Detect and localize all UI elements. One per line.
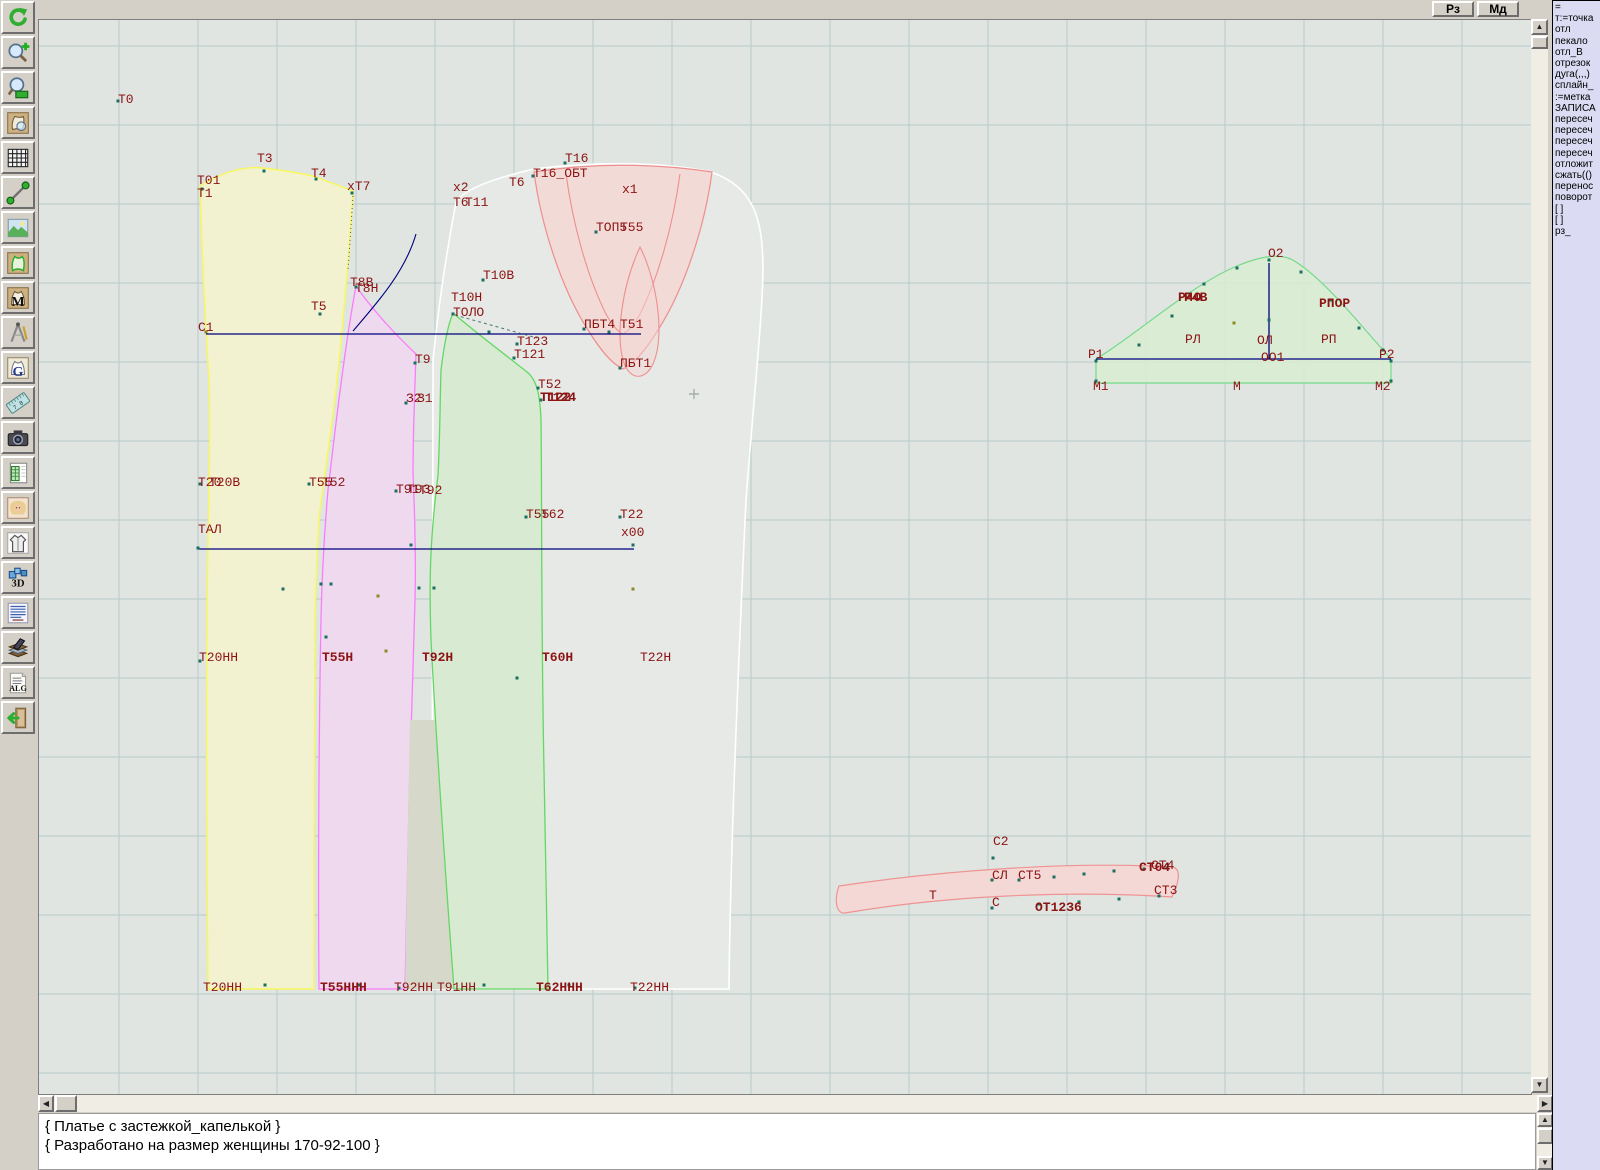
toolbar-view-3d-button[interactable]: 3D — [1, 561, 35, 594]
point-label: М1 — [1093, 379, 1109, 394]
pattern-canvas[interactable]: Т0Т3Т01Т1Т4хТ7х2Т6Т11Т6Т16Т16_ОБТх1ТОП5Т… — [38, 19, 1532, 1095]
point-label: СТ3 — [1154, 883, 1177, 898]
canvas-vscrollbar[interactable]: ▲ ▼ — [1531, 19, 1548, 1093]
point-label: Т22Н — [640, 650, 671, 665]
image-icon — [5, 215, 31, 241]
point-label: РЛ — [1185, 332, 1201, 347]
point-label: Т — [929, 888, 937, 903]
point-label: М2 — [1375, 379, 1391, 394]
point-label: Т55ННН — [320, 980, 367, 995]
status-vscrollbar[interactable]: ▲ ▼ — [1537, 1113, 1553, 1170]
point-label: СЛ — [992, 868, 1008, 883]
point-label: Р1 — [1088, 347, 1104, 362]
command-item[interactable]: т:=точка — [1555, 13, 1600, 24]
scroll-up-icon[interactable]: ▲ — [1531, 19, 1548, 35]
svg-text:ALG: ALG — [9, 684, 27, 693]
point-label: Т0 — [118, 92, 134, 107]
app-window: MG783DALG Рз Мд — [0, 0, 1600, 1170]
point-label: Т5 — [311, 299, 327, 314]
point-label: РП — [1321, 332, 1337, 347]
toolbar-exit-button[interactable] — [1, 701, 35, 734]
toolbar-zoom-in-button[interactable] — [1, 36, 35, 69]
scroll-left-icon[interactable]: ◀ — [38, 1095, 54, 1112]
point-label: Т16_ОБТ — [533, 166, 588, 181]
scroll-right-icon[interactable]: ▶ — [1537, 1095, 1553, 1112]
status-line-1: { Платье с застежкой_капелькой } — [45, 1117, 1529, 1136]
pattern-m-icon: M — [5, 285, 31, 311]
command-item[interactable]: [ ] — [1555, 204, 1600, 215]
toolbar-ruler-button[interactable]: 78 — [1, 386, 35, 419]
status-line-2: { Разработано на размер женщины 170-92-1… — [45, 1136, 1529, 1155]
point-label: Т1 — [197, 186, 213, 201]
command-item[interactable]: сплайн_ — [1555, 80, 1600, 91]
scroll-down-icon[interactable]: ▼ — [1531, 1077, 1548, 1093]
command-item[interactable]: отл_В — [1555, 47, 1600, 58]
point-label: Т62 — [541, 507, 564, 522]
hscroll-thumb[interactable] — [55, 1095, 77, 1112]
point-label: ОЛ — [1257, 333, 1273, 348]
point-label: Т9 — [415, 352, 431, 367]
point-label: Т20В — [209, 475, 240, 490]
toolbar-image-button[interactable] — [1, 211, 35, 244]
status-scroll-up-icon[interactable]: ▲ — [1537, 1113, 1553, 1127]
point-label: Т124 — [545, 390, 576, 405]
command-item[interactable]: отрезок — [1555, 58, 1600, 69]
command-item[interactable]: пересеч — [1555, 125, 1600, 136]
command-item[interactable]: поворот — [1555, 192, 1600, 203]
point-label: С — [992, 895, 1000, 910]
point-label: Р4В — [1184, 290, 1208, 305]
point-label: Т22НН — [630, 980, 669, 995]
point-label: М — [1233, 379, 1241, 394]
measure-icon — [5, 180, 31, 206]
point-label: Т10В — [483, 268, 514, 283]
point-label: Т8Н — [355, 281, 378, 296]
toolbar-undo-button[interactable] — [1, 1, 35, 34]
command-item[interactable]: дуга(,,,) — [1555, 69, 1600, 80]
point-label: С1 — [198, 320, 214, 335]
toolbar-pattern-m-button[interactable]: M — [1, 281, 35, 314]
command-item[interactable]: :=метка — [1555, 92, 1600, 103]
command-item[interactable]: пересеч — [1555, 148, 1600, 159]
toolbar-pattern-button[interactable] — [1, 246, 35, 279]
svg-text:G: G — [13, 364, 24, 380]
toolbar-garment-button[interactable] — [1, 526, 35, 559]
point-label: З1 — [417, 391, 433, 406]
sleeve-piece[interactable] — [1096, 256, 1391, 383]
ruler-icon: 78 — [5, 390, 31, 416]
point-label: РПОР — [1319, 296, 1350, 311]
command-item[interactable]: пересеч — [1555, 114, 1600, 125]
point-label: СТ4 — [1151, 858, 1175, 873]
point-label: ТОЛО — [453, 305, 484, 320]
toolbar-compass-button[interactable] — [1, 316, 35, 349]
zoom-window-icon — [5, 75, 31, 101]
command-item[interactable]: пекало — [1555, 36, 1600, 47]
point-label: х00 — [621, 525, 644, 540]
point-label: Т91НН — [437, 980, 476, 995]
point-label: Т11 — [465, 195, 489, 210]
point-label: Т6 — [509, 175, 525, 190]
undo-icon — [5, 5, 31, 31]
point-label: Т4 — [311, 166, 327, 181]
point-label: Т55 — [620, 220, 643, 235]
pattern-icon — [5, 250, 31, 276]
toolbar-grid-button[interactable] — [1, 141, 35, 174]
toolbar-model-photo-button[interactable] — [1, 491, 35, 524]
command-item[interactable]: сжать(() — [1555, 170, 1600, 181]
left-toolbar: MG783DALG — [0, 0, 37, 1170]
toolbar-piece-preview-button[interactable] — [1, 106, 35, 139]
exit-icon — [5, 705, 31, 731]
point-label: ОТ12З6 — [1035, 900, 1082, 915]
point-label: Т92НН — [394, 980, 433, 995]
vscroll-thumb[interactable] — [1531, 36, 1548, 49]
compass-icon — [5, 320, 31, 346]
command-item[interactable]: отложит — [1555, 159, 1600, 170]
point-label: Т3 — [257, 151, 273, 166]
point-label: Т92 — [419, 483, 442, 498]
command-item[interactable]: отл — [1555, 24, 1600, 35]
toolbar-measure-button[interactable] — [1, 176, 35, 209]
canvas-hscrollbar[interactable]: ◀ ▶ — [38, 1095, 1553, 1112]
piece-preview-icon — [5, 110, 31, 136]
point-label: Т10Н — [451, 290, 482, 305]
command-item[interactable]: [ ] — [1555, 215, 1600, 226]
grid-icon — [5, 145, 31, 171]
point-label: ОО1 — [1261, 350, 1285, 365]
zoom-in-icon — [5, 40, 31, 66]
point-label: СТ5 — [1018, 868, 1041, 883]
books-icon — [5, 635, 31, 661]
point-label: Т121 — [514, 347, 545, 362]
command-item[interactable]: перенос — [1555, 181, 1600, 192]
point-label: О2 — [1268, 246, 1284, 261]
toolbar-alg-button[interactable]: ALG — [1, 666, 35, 699]
toolbar-pattern-g-button[interactable]: G — [1, 351, 35, 384]
md-button[interactable]: Мд — [1477, 1, 1519, 17]
point-label: Т52 — [322, 475, 345, 490]
point-label: Т62ННН — [536, 980, 583, 995]
point-label: Т51 — [620, 317, 644, 332]
point-label: Т22 — [620, 507, 643, 522]
point-label: хТ7 — [347, 179, 370, 194]
command-panel[interactable]: =т:=точкаотлпекалоотл_Вотрезокдуга(,,,)с… — [1552, 0, 1600, 1170]
point-label: Т55Н — [322, 650, 353, 665]
point-label: Т92Н — [422, 650, 453, 665]
point-label: ТАЛ — [198, 522, 222, 537]
point-label: С2 — [993, 834, 1009, 849]
point-label: Т60Н — [542, 650, 573, 665]
pattern-drawing: Т0Т3Т01Т1Т4хТ7х2Т6Т11Т6Т16Т16_ОБТх1ТОП5Т… — [39, 20, 1531, 1094]
pattern-g-icon: G — [5, 355, 31, 381]
point-label: Т16 — [565, 151, 588, 166]
toolbar-zoom-window-button[interactable] — [1, 71, 35, 104]
point-label: ПБТ4 — [584, 317, 615, 332]
toolbar-books-button[interactable] — [1, 631, 35, 664]
command-item[interactable]: пересеч — [1555, 136, 1600, 147]
camera-icon — [5, 425, 31, 451]
point-label: Т20НН — [203, 980, 242, 995]
view-3d-icon: 3D — [5, 565, 31, 591]
point-label: х1 — [622, 182, 638, 197]
toolbar-table-button[interactable] — [1, 456, 35, 489]
script-status-panel[interactable]: { Платье с застежкой_капелькой } { Разра… — [38, 1113, 1536, 1170]
toolbar-text-list-button[interactable] — [1, 596, 35, 629]
svg-text:3D: 3D — [11, 577, 24, 589]
model-photo-icon — [5, 495, 31, 521]
garment-icon — [5, 530, 31, 556]
text-list-icon — [5, 600, 31, 626]
point-label: х2 — [453, 180, 469, 195]
svg-text:M: M — [11, 294, 24, 310]
status-scroll-down-icon[interactable]: ▼ — [1537, 1156, 1553, 1170]
point-label: ПБТ1 — [620, 356, 651, 371]
table-icon — [5, 460, 31, 486]
alg-icon: ALG — [5, 670, 31, 696]
status-vscroll-thumb[interactable] — [1537, 1128, 1553, 1144]
point-label: Р2 — [1379, 347, 1395, 362]
point-label: Т20НН — [199, 650, 238, 665]
command-item[interactable]: = — [1555, 2, 1600, 13]
command-item[interactable]: рз_ — [1555, 226, 1600, 237]
command-item[interactable]: ЗАПИСА — [1555, 103, 1600, 114]
rz-button[interactable]: Рз — [1432, 1, 1474, 17]
toolbar-camera-button[interactable] — [1, 421, 35, 454]
